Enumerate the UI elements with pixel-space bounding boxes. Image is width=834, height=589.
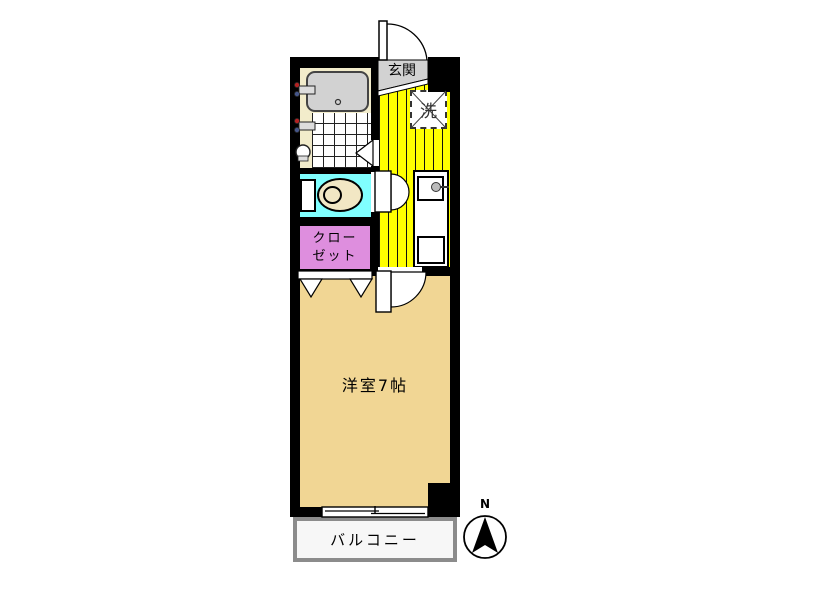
pillar xyxy=(428,483,456,517)
closet-label-line1: クロー xyxy=(312,230,357,248)
toilet-tank xyxy=(300,179,316,212)
balcony-label: バルコニー xyxy=(330,529,420,550)
room-door-opening xyxy=(378,267,422,276)
wall-top-right-corner xyxy=(428,57,460,92)
balcony: バルコニー xyxy=(293,517,457,562)
kitchen-sink xyxy=(417,176,444,201)
toilet-door-opening xyxy=(371,172,379,212)
wall-bottom-left xyxy=(290,507,323,517)
kitchen-stove-space xyxy=(417,236,445,264)
bathroom-tile-floor xyxy=(312,113,371,168)
entrance-door-arc xyxy=(387,24,427,60)
compass-north-arrow-icon xyxy=(472,517,498,553)
compass-circle xyxy=(464,516,506,558)
wall-right xyxy=(450,92,460,517)
entrance-door-leaf xyxy=(379,21,387,60)
wall-bath-toilet xyxy=(299,168,379,174)
wall-toilet-closet xyxy=(299,217,379,224)
closet-label: クロー ゼット xyxy=(298,228,372,268)
laundry-label: 洗 xyxy=(410,91,447,128)
entrance-label: 玄関 xyxy=(378,61,426,78)
wall-divider xyxy=(371,57,379,276)
window xyxy=(322,507,428,517)
bathroom-door-opening xyxy=(371,140,379,166)
toilet-bowl-inner xyxy=(323,186,342,204)
wall-top xyxy=(290,57,379,68)
floor-plan: バルコニー xyxy=(0,0,834,589)
bathtub xyxy=(306,71,369,112)
main-room-label: 洋室7帖 xyxy=(300,374,450,394)
wall-left xyxy=(290,57,300,517)
compass-north-label: N xyxy=(474,497,496,510)
closet-label-line2: ゼット xyxy=(312,248,357,266)
